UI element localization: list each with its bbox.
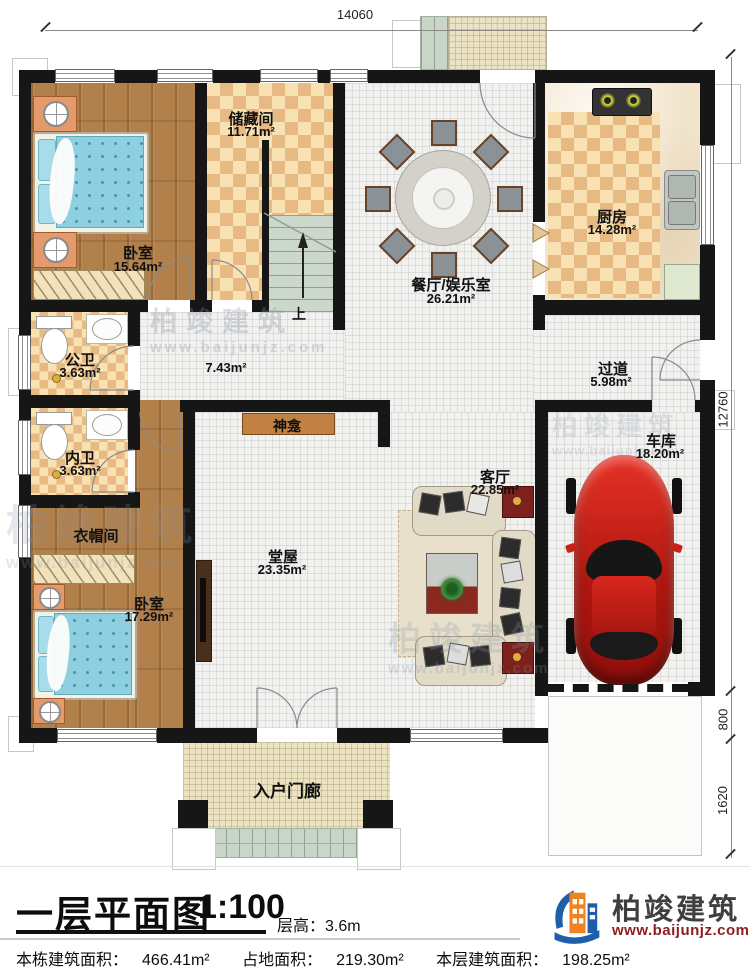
room-area-garage: 18.20m² [636,446,684,461]
stair-arrow-head [298,232,308,248]
brand-logo-icon [546,882,610,946]
room-area-bedroom-bottom: 17.29m² [125,609,173,624]
room-area-storage: 11.71m² [227,124,275,139]
swing-door-icon [533,224,549,242]
floor-height-value: 3.6m [325,918,361,935]
stairs-up-label: 上 [292,304,306,324]
stat-label: 占地面积： [242,952,322,969]
floor-height: 层高：3.6m [277,912,361,936]
door-arcs-layer [0,0,750,974]
room-area-bath-private: 3.63m² [59,463,100,478]
stat-value: 219.30m² [336,952,404,969]
room-area-hallway: 7.43m² [205,360,246,375]
title-underline-thin [0,938,520,940]
room-label-porch: 入户门廊 [253,777,321,802]
stat-label: 本栋建筑面积： [16,952,128,969]
room-area-dining: 26.21m² [427,291,475,306]
stat-value: 466.41m² [142,952,210,969]
room-area-bath-public: 3.63m² [59,365,100,380]
area-stats: 本栋建筑面积：466.41m² 占地面积：219.30m² 本层建筑面积：198… [16,946,658,970]
floor-height-label: 层高： [277,918,325,935]
room-area-bedroom-top: 15.64m² [114,259,162,274]
room-area-living: 22.85m² [471,482,519,497]
shrine-label: 神龛 [273,416,301,436]
brand-website: www.baijunjz.com [612,922,749,939]
room-area-main-hall: 23.35m² [258,562,306,577]
swing-door-icon [533,260,549,278]
room-area-kitchen: 14.28m² [588,222,636,237]
dimension-top: 14060 [332,7,378,22]
scale-label: 1:100 [198,888,285,927]
title-underline [16,930,266,934]
dimension-side-lower: 800 [715,709,730,731]
stat-value: 198.25m² [562,952,630,969]
room-label-cloakroom: 衣帽间 [73,525,118,546]
dimension-side-bottom: 1620 [715,786,730,815]
floor-plan-page: 柏竣建筑 www.baijunjz.com 柏竣建筑 www.baijunjz.… [0,0,750,974]
dimension-side: 12760 [716,391,731,427]
footer-divider [0,866,750,867]
dimension-line-top [45,30,698,31]
stat-label: 本层建筑面积： [436,952,548,969]
room-area-corridor: 5.98m² [590,374,631,389]
